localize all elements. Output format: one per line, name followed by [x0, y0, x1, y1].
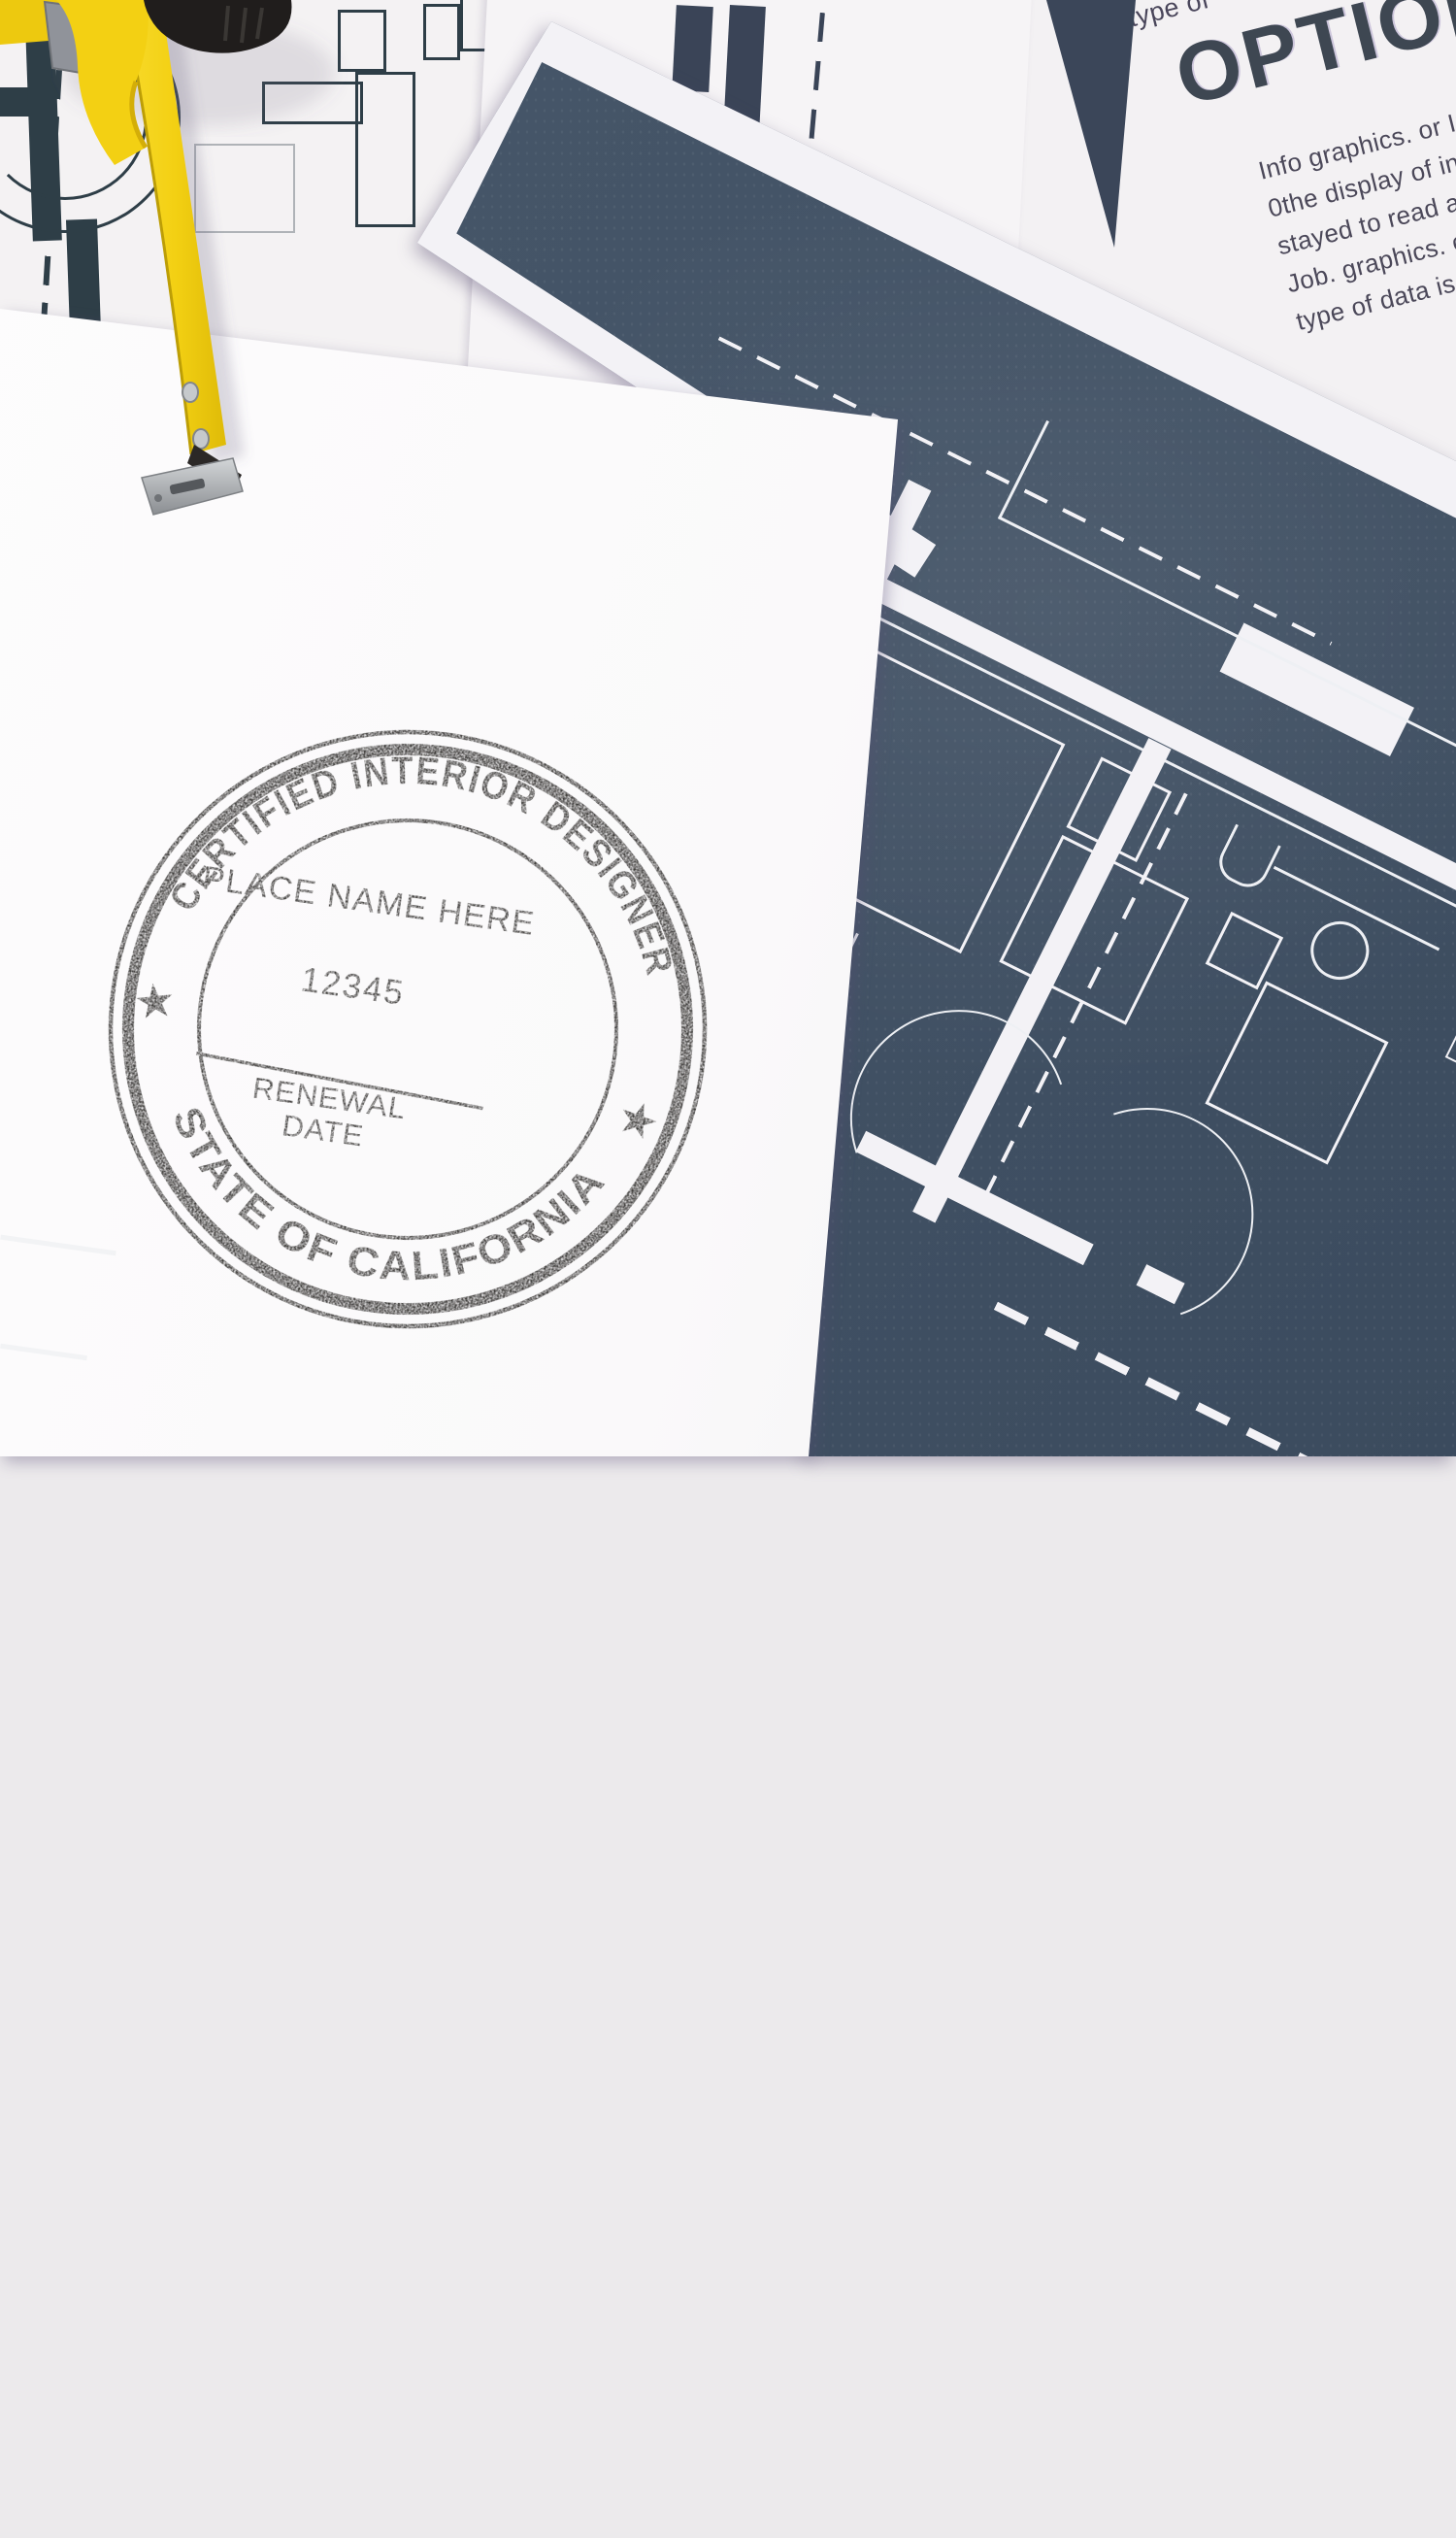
seal-star-left: ★ [131, 972, 179, 1030]
tape-hook-screw [154, 494, 162, 502]
seal-ring-bottom-text: STATE OF CALIFORNIA [145, 1095, 617, 1319]
tape-measure [0, 0, 369, 602]
certification-seal: CERTIFIED INTERIOR DESIGNER STATE OF CAL… [68, 689, 747, 1369]
tape-rivet [182, 383, 198, 402]
seal-license-number: 12345 [299, 960, 408, 1013]
photo-scene: type of OPTIONS Info graphics. or Infor … [0, 0, 1456, 1456]
seal-name-placeholder: PLACE NAME HERE [200, 859, 538, 943]
